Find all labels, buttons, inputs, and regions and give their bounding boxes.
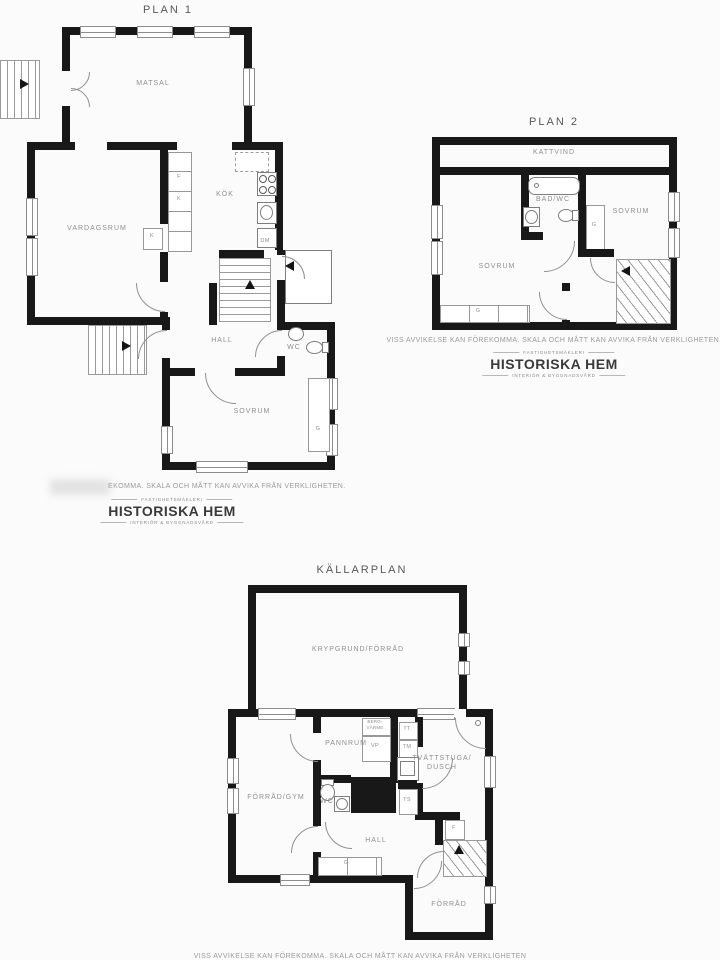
room-label-tvattstuga-line2: DUSCH (427, 764, 457, 771)
shower-drain-icon (475, 720, 481, 726)
staircase-up (443, 840, 487, 877)
washer-label: TM (403, 744, 412, 750)
room-label-krypgrund: KRYPGRUND/FÖRRÅD (312, 646, 404, 653)
sink-basin-icon (400, 761, 415, 776)
wall (405, 875, 413, 940)
wall (459, 585, 467, 717)
window (258, 708, 296, 720)
kallarplan-disclaimer: VISS AVVIKELSE KAN FÖREKOMMA. SKALA OCH … (194, 953, 527, 960)
wall (313, 709, 321, 733)
dryer-label: TT (403, 726, 410, 732)
window (484, 756, 496, 788)
room-label-hall: HALL (365, 837, 387, 844)
floor-plan-basement: KÄLLARPLAN BERG- (0, 0, 720, 960)
wall (248, 585, 467, 593)
room-label-pannrum: PANNRUM (325, 740, 367, 747)
hall-wardrobe (318, 857, 382, 876)
window (227, 758, 239, 784)
room-label-wc: WC (320, 798, 334, 805)
wardrobe-label: G (344, 860, 349, 866)
room-label-forrad: FÖRRÅD (431, 901, 467, 908)
wall (405, 932, 493, 940)
window (458, 633, 470, 647)
wall (248, 585, 256, 717)
sink-basin-icon (336, 798, 348, 810)
wall (435, 812, 443, 845)
vp-label: VP (371, 743, 379, 749)
wall (398, 780, 417, 789)
bergvarme-label-line1: BERG- (367, 719, 382, 724)
closet-f-label: F (452, 825, 456, 831)
kallarplan-title: KÄLLARPLAN (317, 564, 408, 576)
wall (485, 709, 493, 940)
door-opening (454, 709, 466, 717)
window (227, 788, 239, 814)
bergvarme-label-line2: VÄRME (366, 725, 383, 730)
window (280, 874, 310, 886)
room-label-tvattstuga-line1: TVÄTTSTUGA/ (412, 755, 471, 762)
room-label-forradgym: FÖRRÅD/GYM (247, 794, 304, 801)
floor-plan-sheet: PLAN 1 F K K (0, 0, 720, 960)
stair-direction-arrow-icon (454, 845, 464, 854)
window (458, 661, 470, 675)
drying-cabinet-label: TS (403, 797, 411, 803)
window (484, 886, 496, 904)
wall (228, 875, 413, 883)
